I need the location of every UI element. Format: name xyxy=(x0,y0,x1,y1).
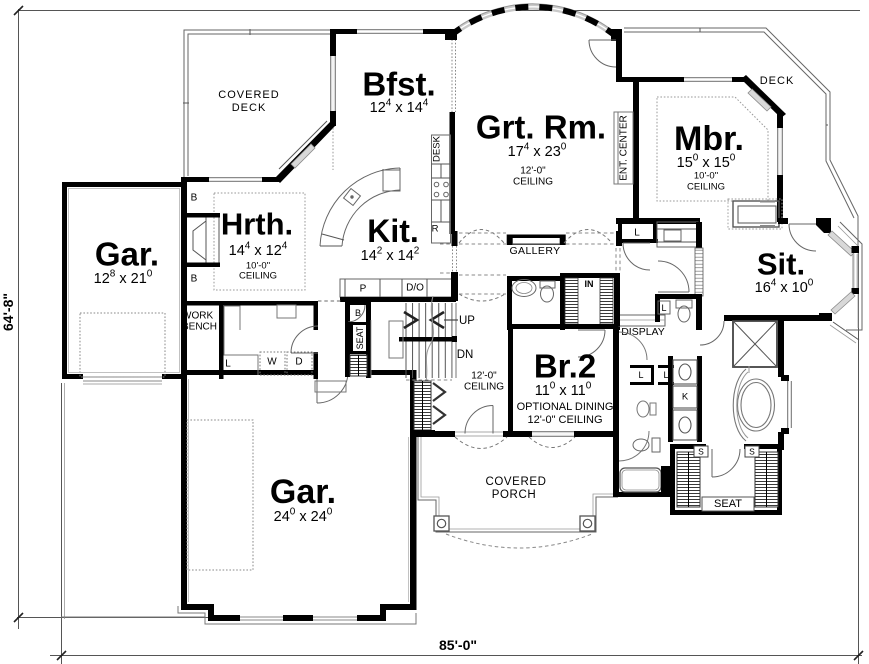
svg-text:Br.2: Br.2 xyxy=(534,348,596,385)
svg-text:IN: IN xyxy=(585,279,594,289)
svg-text:SEAT: SEAT xyxy=(714,498,742,510)
svg-text:CEILING: CEILING xyxy=(687,182,725,193)
svg-text:DECK: DECK xyxy=(760,75,795,87)
svg-text:L: L xyxy=(634,228,640,239)
svg-text:W: W xyxy=(267,357,277,368)
svg-text:B: B xyxy=(191,274,198,285)
svg-text:DECK: DECK xyxy=(232,102,267,114)
svg-text:150 x 150: 150 x 150 xyxy=(677,152,736,171)
svg-text:174 x 230: 174 x 230 xyxy=(508,141,567,160)
svg-text:DESK: DESK xyxy=(432,135,443,162)
svg-text:Kit.: Kit. xyxy=(367,213,419,249)
svg-text:124 x 144: 124 x 144 xyxy=(370,97,429,116)
svg-text:L: L xyxy=(225,359,231,370)
svg-text:R: R xyxy=(432,224,439,235)
svg-text:CEILING: CEILING xyxy=(239,271,277,282)
svg-text:144 x 124: 144 x 124 xyxy=(229,240,288,259)
svg-text:B: B xyxy=(191,193,198,204)
svg-text:S: S xyxy=(698,447,704,457)
svg-text:COVERED: COVERED xyxy=(485,476,546,488)
svg-text:WORK: WORK xyxy=(182,311,213,322)
svg-text:DISPLAY: DISPLAY xyxy=(621,326,665,338)
svg-text:K: K xyxy=(682,392,689,403)
svg-text:SEAT: SEAT xyxy=(355,326,365,349)
svg-text:12'-0": 12'-0" xyxy=(520,166,546,177)
svg-text:GALLERY: GALLERY xyxy=(509,245,560,257)
svg-text:B: B xyxy=(355,308,361,318)
svg-text:64'-8": 64'-8" xyxy=(0,293,16,331)
svg-text:COVERED: COVERED xyxy=(218,89,279,101)
svg-text:S: S xyxy=(749,447,755,457)
svg-text:85'-0": 85'-0" xyxy=(439,637,477,653)
svg-text:164 x 100: 164 x 100 xyxy=(755,277,814,296)
svg-text:240 x 240: 240 x 240 xyxy=(274,506,333,525)
svg-text:BENCH: BENCH xyxy=(182,322,217,333)
svg-text:UP: UP xyxy=(459,315,475,327)
svg-text:10'-0": 10'-0" xyxy=(694,171,718,182)
svg-text:12'-0": 12'-0" xyxy=(471,371,497,382)
svg-text:L: L xyxy=(663,370,668,380)
svg-text:Grt. Rm.: Grt. Rm. xyxy=(476,109,606,146)
svg-text:CEILING: CEILING xyxy=(513,177,553,188)
svg-text:P: P xyxy=(360,284,367,295)
svg-text:128 x 210: 128 x 210 xyxy=(94,268,153,287)
svg-text:D/O: D/O xyxy=(406,283,424,294)
svg-text:110 x 110: 110 x 110 xyxy=(535,380,592,399)
svg-text:Gar.: Gar. xyxy=(95,236,159,273)
svg-text:Hrth.: Hrth. xyxy=(221,207,293,242)
svg-text:OPTIONAL DINING: OPTIONAL DINING xyxy=(517,401,614,413)
svg-text:PORCH: PORCH xyxy=(492,489,537,501)
svg-text:L: L xyxy=(661,303,666,313)
svg-text:142 x 142: 142 x 142 xyxy=(361,245,420,264)
svg-text:D: D xyxy=(295,357,302,368)
svg-text:CEILING: CEILING xyxy=(464,382,504,393)
svg-text:L: L xyxy=(638,370,643,380)
svg-text:Sit.: Sit. xyxy=(757,247,805,282)
svg-text:12'-0" CEILING: 12'-0" CEILING xyxy=(527,414,602,426)
svg-text:DN: DN xyxy=(457,349,474,361)
svg-text:ENT. CENTER: ENT. CENTER xyxy=(619,115,630,181)
